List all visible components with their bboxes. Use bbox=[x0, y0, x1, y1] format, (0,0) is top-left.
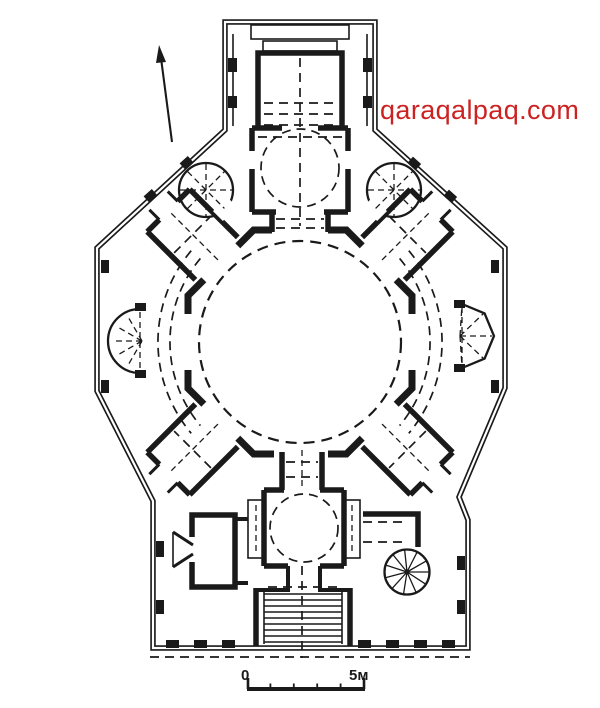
furnace-room bbox=[156, 515, 248, 587]
east-niche bbox=[454, 300, 494, 372]
furnace-mouth bbox=[173, 532, 193, 567]
hall-east-doorway bbox=[402, 314, 422, 370]
west-niche bbox=[108, 303, 146, 378]
main-staircase bbox=[256, 566, 350, 658]
vestibule-west-door bbox=[246, 151, 258, 169]
vestibule-east-door bbox=[342, 151, 354, 169]
scale-zero-label: 0 bbox=[241, 667, 249, 684]
scale-bar: 0 5м bbox=[241, 667, 368, 689]
hall-west-doorway bbox=[178, 314, 198, 370]
scale-end-label: 5м bbox=[349, 667, 368, 684]
spiral-staircase bbox=[363, 514, 430, 595]
scanned-floorplan-page: 0 5м qaraqalpaq.com bbox=[0, 0, 600, 708]
entrance-steps-lower bbox=[263, 41, 337, 51]
vestibule-room bbox=[246, 58, 354, 232]
entrance-steps-upper bbox=[251, 25, 349, 39]
watermark-text: qaraqalpaq.com bbox=[380, 96, 579, 126]
south-dome-circle bbox=[270, 494, 338, 562]
stair-treads bbox=[264, 594, 342, 642]
north-arrow-icon bbox=[156, 45, 172, 142]
south-domed-room bbox=[248, 490, 360, 566]
central-dome-circle bbox=[199, 241, 401, 443]
